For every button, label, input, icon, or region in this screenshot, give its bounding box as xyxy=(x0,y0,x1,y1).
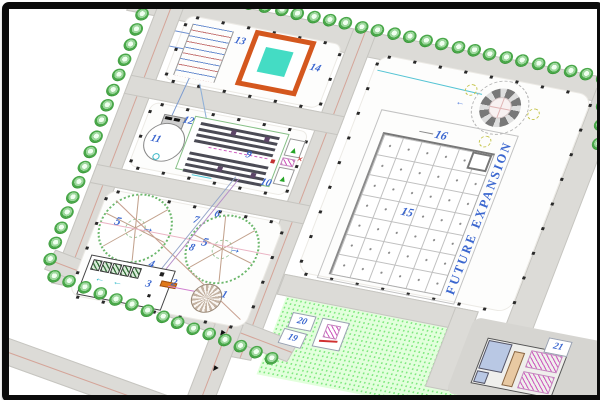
tree-icon xyxy=(127,22,144,37)
tree-icon xyxy=(93,114,110,129)
tree-icon xyxy=(225,2,242,7)
tree-icon xyxy=(122,37,139,52)
legend-hatch xyxy=(322,324,341,340)
tree-icon xyxy=(76,159,93,174)
tree-icon xyxy=(110,68,127,83)
site-plan-canvas: ▲ ✕ ▲ ← ← ▲ ▲ xyxy=(2,2,600,400)
tree-icon xyxy=(47,236,64,251)
tree-icon xyxy=(99,98,116,113)
drawing-frame: ▲ ✕ ▲ ← ← ▲ ▲ xyxy=(2,2,600,400)
tree-icon xyxy=(70,175,87,190)
tree-icon xyxy=(64,190,81,205)
screenshot-stage: ▲ ✕ ▲ ← ← ▲ ▲ xyxy=(0,0,600,400)
tree-icon xyxy=(81,144,98,159)
unit-label-20: 20 xyxy=(289,313,315,329)
tree-icon xyxy=(58,205,75,220)
tree-icon xyxy=(53,221,70,236)
tree-icon xyxy=(116,52,133,67)
tank-14-basin xyxy=(257,47,294,77)
flow-up-arrow-icon: ▲ xyxy=(288,145,300,156)
legend-red-line xyxy=(319,340,338,343)
tree-icon xyxy=(104,83,121,98)
unit-label-21: 21 xyxy=(545,339,571,355)
tree-icon xyxy=(87,129,104,144)
flow-up-arrow-icon: ▲ xyxy=(277,173,289,184)
tree-icon xyxy=(208,2,225,4)
unit-label-19: 19 xyxy=(280,329,306,346)
tree-icon xyxy=(139,2,156,6)
